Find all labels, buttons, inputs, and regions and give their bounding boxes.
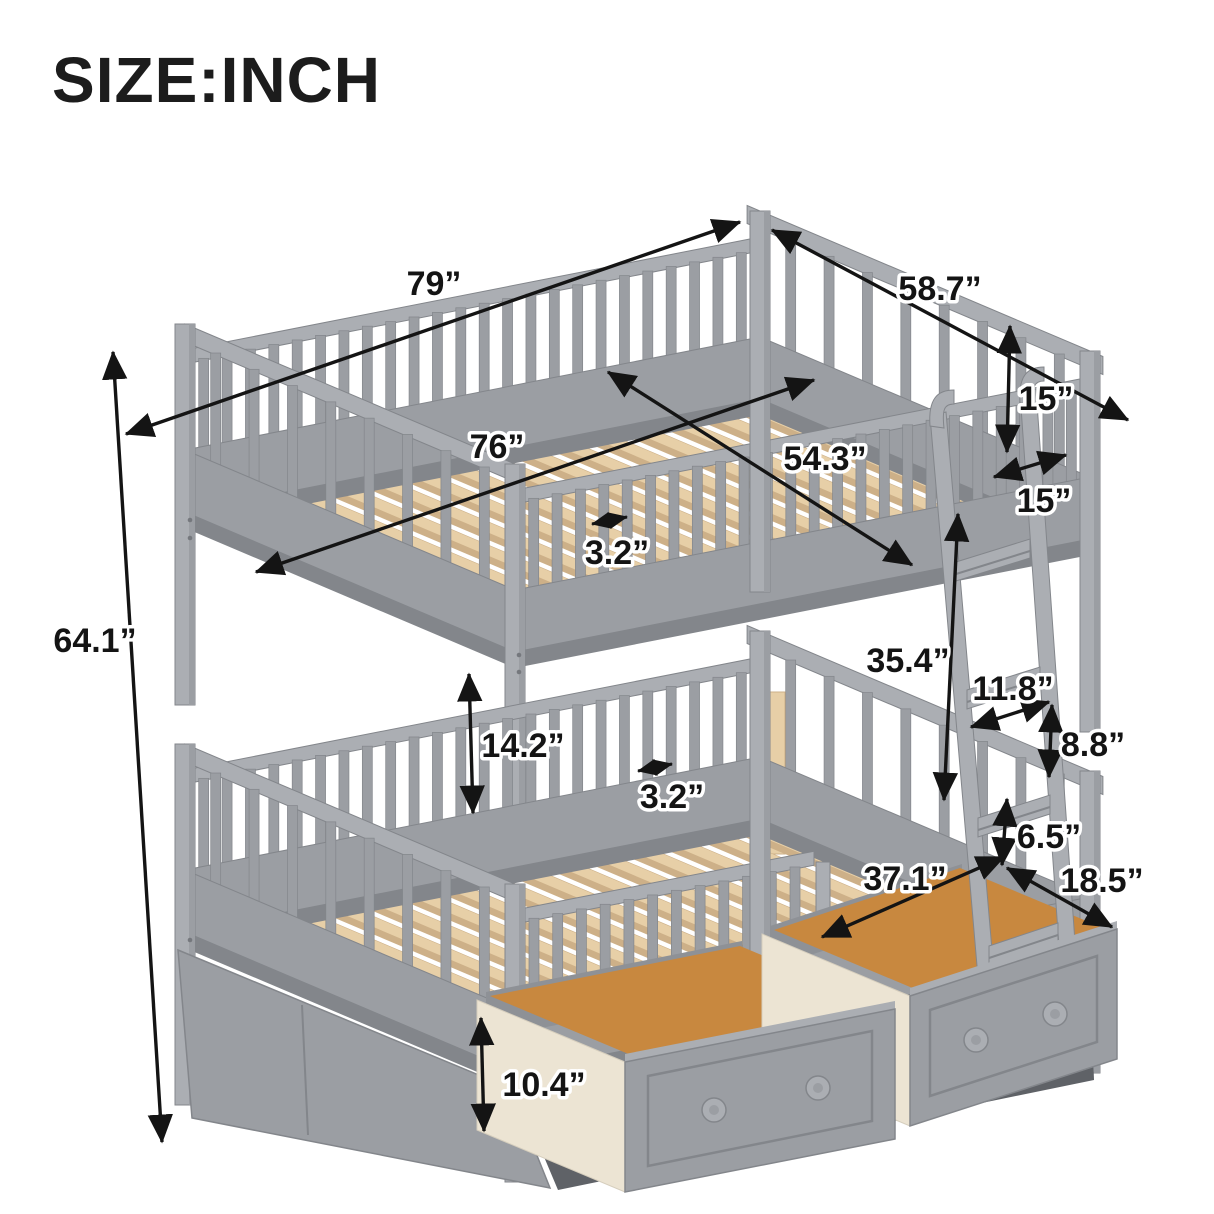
dimension-arrow bbox=[1007, 326, 1010, 452]
dimension-label: 18.5” bbox=[1060, 862, 1143, 900]
dimension-label: 10.4” bbox=[502, 1066, 585, 1104]
dimension-label: 76” bbox=[470, 428, 525, 466]
dimension-overall-height: 64.1” bbox=[53, 352, 162, 1142]
dimension-label: 54.3” bbox=[783, 440, 866, 478]
dimension-arrow bbox=[1002, 799, 1007, 865]
bunk-bed-diagram: 79” 58.7” 76” 54.3” 3.2” 15” 15” 64.1” bbox=[0, 0, 1214, 1214]
dimension-label: 58.7” bbox=[898, 270, 981, 308]
dimension-label: 15” bbox=[1019, 380, 1074, 418]
dimension-label: 37.1” bbox=[863, 860, 946, 898]
dimension-arrow bbox=[469, 674, 473, 813]
dimension-label: 6.5” bbox=[1017, 818, 1081, 856]
dimension-label: 79” bbox=[407, 265, 462, 303]
dimension-ladder-rung-length: 11.8” bbox=[971, 670, 1054, 727]
dimension-label: 35.4” bbox=[866, 642, 949, 680]
product-dimension-diagram: 79” 58.7” 76” 54.3” 3.2” 15” 15” 64.1” bbox=[0, 0, 1214, 1214]
dimension-label: 15” bbox=[1017, 482, 1072, 520]
dimension-label: 8.8” bbox=[1061, 726, 1125, 764]
dimension-label: 11.8” bbox=[972, 670, 1053, 708]
dimension-label: 3.2” bbox=[585, 534, 649, 572]
dimension-label: 3.2” bbox=[640, 778, 704, 816]
dimension-label: 14.2” bbox=[481, 727, 564, 765]
page-title: SIZE:INCH bbox=[52, 44, 381, 116]
dimension-label: 64.1” bbox=[53, 622, 136, 660]
dimension-arrow bbox=[113, 352, 162, 1142]
